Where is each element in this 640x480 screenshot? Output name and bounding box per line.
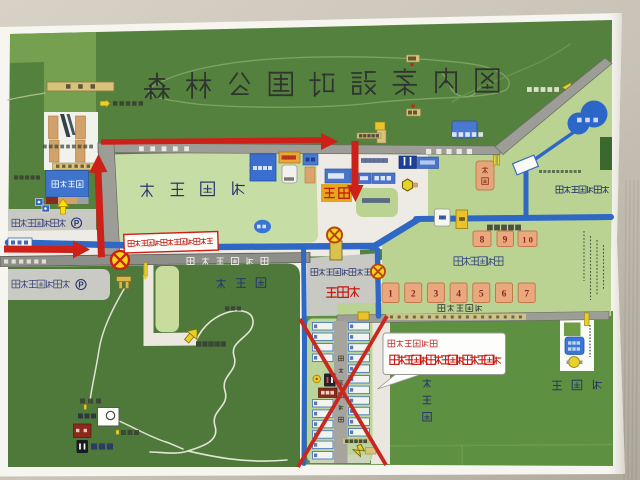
- svg-text:P: P: [74, 219, 80, 228]
- svg-text:8: 8: [480, 236, 485, 246]
- svg-text:1 0: 1 0: [522, 235, 533, 245]
- svg-text:P: P: [78, 281, 84, 290]
- svg-text:7: 7: [524, 290, 529, 300]
- svg-text:5: 5: [479, 290, 484, 300]
- svg-text:3: 3: [434, 290, 439, 300]
- svg-text:6: 6: [502, 290, 507, 300]
- svg-text:1: 1: [388, 290, 393, 300]
- svg-text:9: 9: [503, 236, 508, 246]
- svg-text:4: 4: [456, 290, 461, 300]
- svg-text:2: 2: [411, 290, 416, 300]
